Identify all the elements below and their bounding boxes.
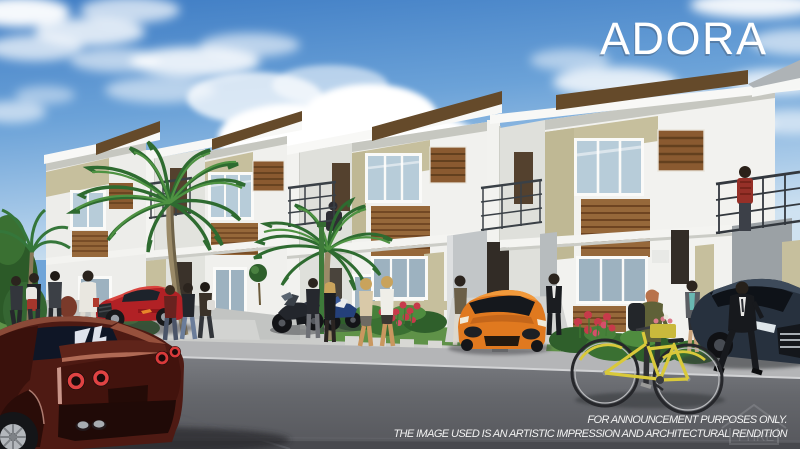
svg-text:ADORA: ADORA — [600, 13, 768, 64]
svg-text:THE IMAGE USED IS AN ARTISTIC: THE IMAGE USED IS AN ARTISTIC IMPRESSION… — [393, 428, 787, 440]
svg-text:FOR ANNOUNCEMENT PURPOSES ONLY: FOR ANNOUNCEMENT PURPOSES ONLY. — [587, 414, 787, 426]
